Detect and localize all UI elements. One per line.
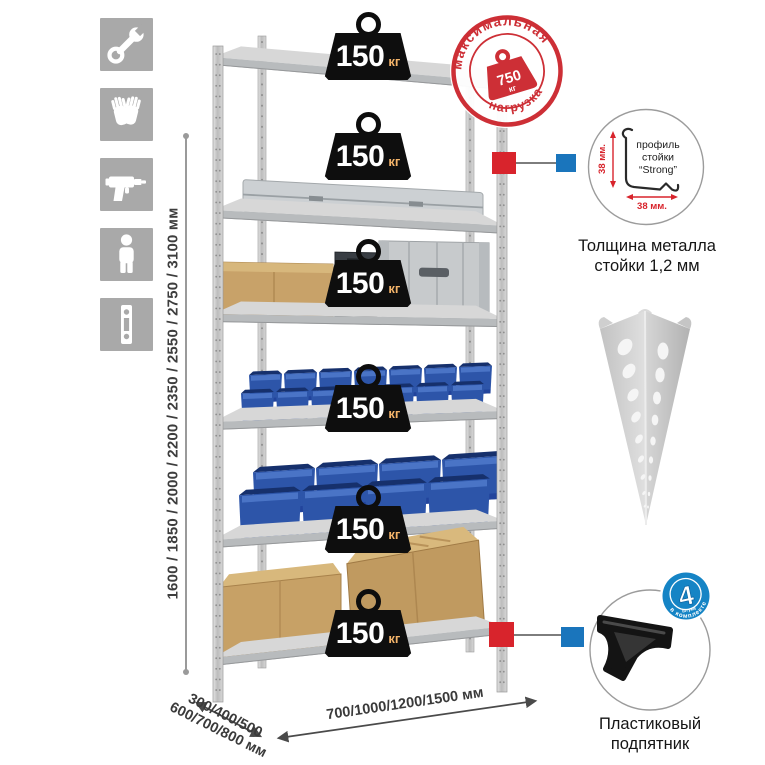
load-value: 150 [336,269,385,299]
product-infographic: 1600 / 1850 / 2000 / 2200 / 2350 / 2550 … [0,0,765,765]
profile-caption: Толщина металла стойки 1,2 мм [547,236,747,276]
connector-red-square-top [492,152,516,174]
assembly-tools-tile [100,18,153,71]
load-unit: кг [388,55,400,68]
connector-red-square-bottom [489,622,514,647]
shelf-load-badge: 150кг [324,12,412,80]
connector-blue-square-bottom [561,627,584,647]
load-value: 150 [336,515,385,545]
max-load-stamp: максимальная нагрузка 750 кг [447,11,567,131]
load-unit: кг [388,528,400,541]
person-icon [100,228,153,281]
connector-blue-square-top [556,154,576,172]
load-unit: кг [388,282,400,295]
height-dimension-line [185,136,187,672]
drill-icon [100,158,153,211]
height-dim-bottom-dot [183,669,189,675]
drill-tile [100,158,153,211]
angle-post-image [595,303,695,533]
load-value: 150 [336,619,385,649]
profile-caption-line2: стойки 1,2 мм [547,256,747,276]
shelf-load-badge: 150кг [324,112,412,180]
connector-line-bottom [512,634,564,636]
gloves-icon [100,88,153,141]
shelf-load-badge: 150кг [324,239,412,307]
foot-caption: Пластиковый подпятник [550,714,750,754]
load-value: 150 [336,42,385,72]
person-tile [100,228,153,281]
load-value: 150 [336,394,385,424]
profile-label-2: стойки [642,152,674,164]
gloves-tile [100,88,153,141]
wrench-icon [100,18,153,71]
profile-caption-line1: Толщина металла [547,236,747,256]
post-profile-detail: 38 мм. 38 мм. профиль стойки “Strong” [586,107,706,227]
height-dim-top-dot [183,133,189,139]
profile-dim-horizontal: 38 мм. [637,201,667,212]
load-unit: кг [388,632,400,645]
load-value: 150 [336,142,385,172]
load-unit: кг [388,155,400,168]
shelf-load-badge: 150кг [324,485,412,553]
foot-caption-line2: подпятник [550,734,750,754]
connector-line-top [514,162,560,164]
load-unit: кг [388,407,400,420]
profile-label-1: профиль [636,139,680,151]
shelf-load-badge: 150кг [324,364,412,432]
shelf-2 [213,178,504,234]
upright-strip-tile [100,298,153,351]
height-dimension-label: 1600 / 1850 / 2000 / 2200 / 2350 / 2550 … [165,124,182,684]
profile-dim-vertical: 38 мм. [597,144,608,174]
shelf-load-badge: 150кг [324,589,412,657]
profile-label-3: “Strong” [639,164,677,176]
foot-caption-line1: Пластиковый [550,714,750,734]
included-count-badge: 4 штуки в комплекте [659,569,713,623]
upright-strip-icon [100,298,153,351]
